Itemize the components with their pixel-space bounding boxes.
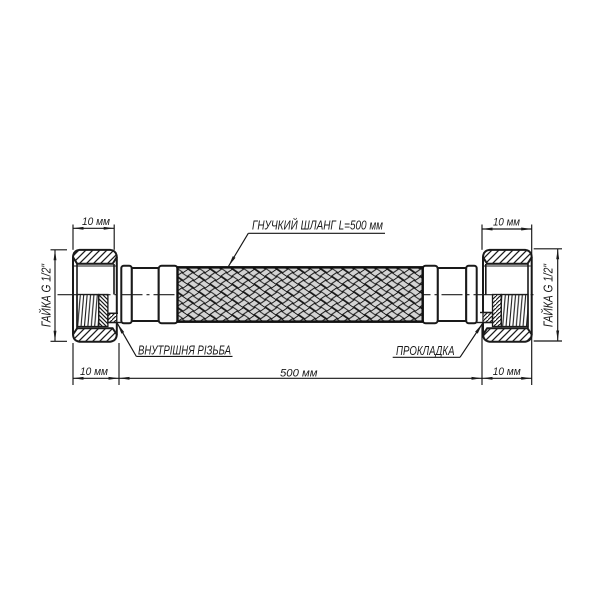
- svg-text:ПРОКЛАДКА: ПРОКЛАДКА: [396, 344, 455, 358]
- svg-text:ГНУЧКИЙ ШЛАНГ L=500 мм: ГНУЧКИЙ ШЛАНГ L=500 мм: [252, 217, 383, 233]
- svg-text:ВНУТРІШНЯ РІЗЬБА: ВНУТРІШНЯ РІЗЬБА: [138, 344, 231, 358]
- svg-text:10 мм: 10 мм: [493, 366, 522, 378]
- svg-text:10 мм: 10 мм: [82, 216, 111, 228]
- svg-text:ГАЙКА G 1/2": ГАЙКА G 1/2": [540, 264, 556, 327]
- svg-text:10 мм: 10 мм: [80, 366, 109, 378]
- svg-text:500 мм: 500 мм: [280, 367, 318, 379]
- svg-text:10 мм: 10 мм: [493, 216, 521, 228]
- svg-text:ГАЙКА G 1/2": ГАЙКА G 1/2": [38, 264, 54, 327]
